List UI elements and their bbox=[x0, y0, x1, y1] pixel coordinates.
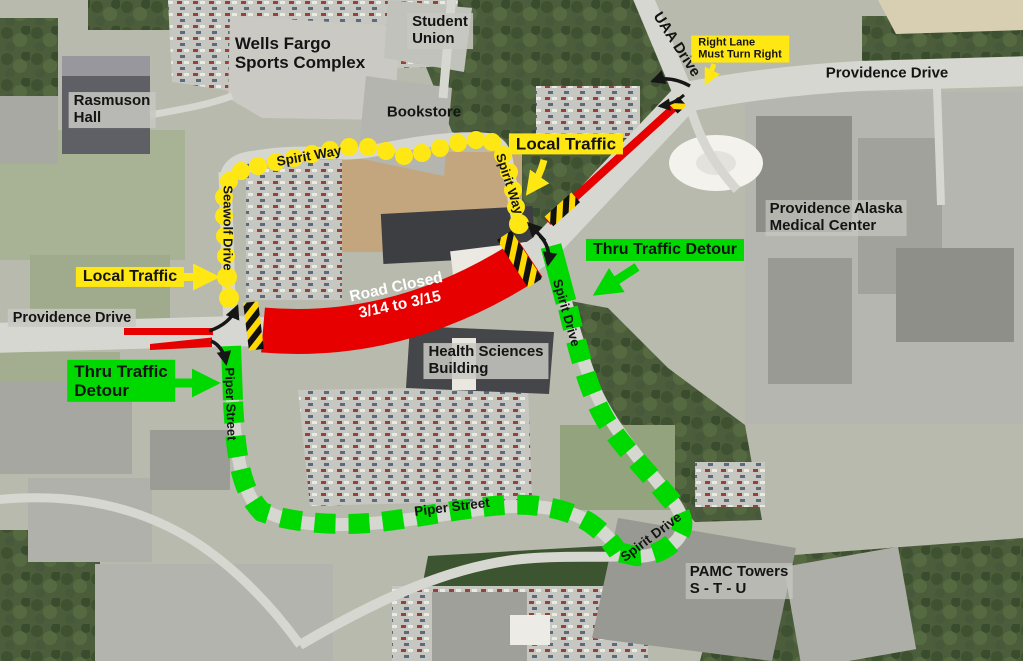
label-seawolf-drive: Seawolf Drive bbox=[220, 185, 235, 270]
label-rasmuson-hall: Rasmuson Hall bbox=[69, 92, 156, 128]
label-providence-drive-west: Providence Drive bbox=[8, 309, 136, 327]
closed-lane-stripe-1 bbox=[124, 328, 213, 335]
label-bookstore: Bookstore bbox=[387, 105, 461, 122]
label-piper-street-upper: Piper Street bbox=[221, 367, 238, 440]
label-health-sciences-building: Health Sciences Building bbox=[423, 343, 548, 379]
label-thru-traffic-detour-left: Thru Traffic Detour bbox=[67, 360, 175, 402]
label-student-union: Student Union bbox=[407, 13, 473, 49]
label-providence-alaska-medical-center: Providence Alaska Medical Center bbox=[766, 200, 907, 236]
label-right-lane-must-turn-right: Right Lane Must Turn Right bbox=[691, 36, 789, 63]
label-pamc-towers: PAMC Towers S - T - U bbox=[686, 563, 793, 599]
label-providence-drive-east: Providence Drive bbox=[826, 66, 949, 83]
label-thru-traffic-detour-right: Thru Traffic Detour bbox=[586, 239, 744, 261]
label-local-traffic-top: Local Traffic bbox=[509, 133, 623, 154]
detour-map: Wells Fargo Sports Complex Student Union… bbox=[0, 0, 1023, 661]
label-wells-fargo-sports-complex: Wells Fargo Sports Complex bbox=[235, 34, 365, 72]
label-local-traffic-left: Local Traffic bbox=[76, 267, 184, 287]
